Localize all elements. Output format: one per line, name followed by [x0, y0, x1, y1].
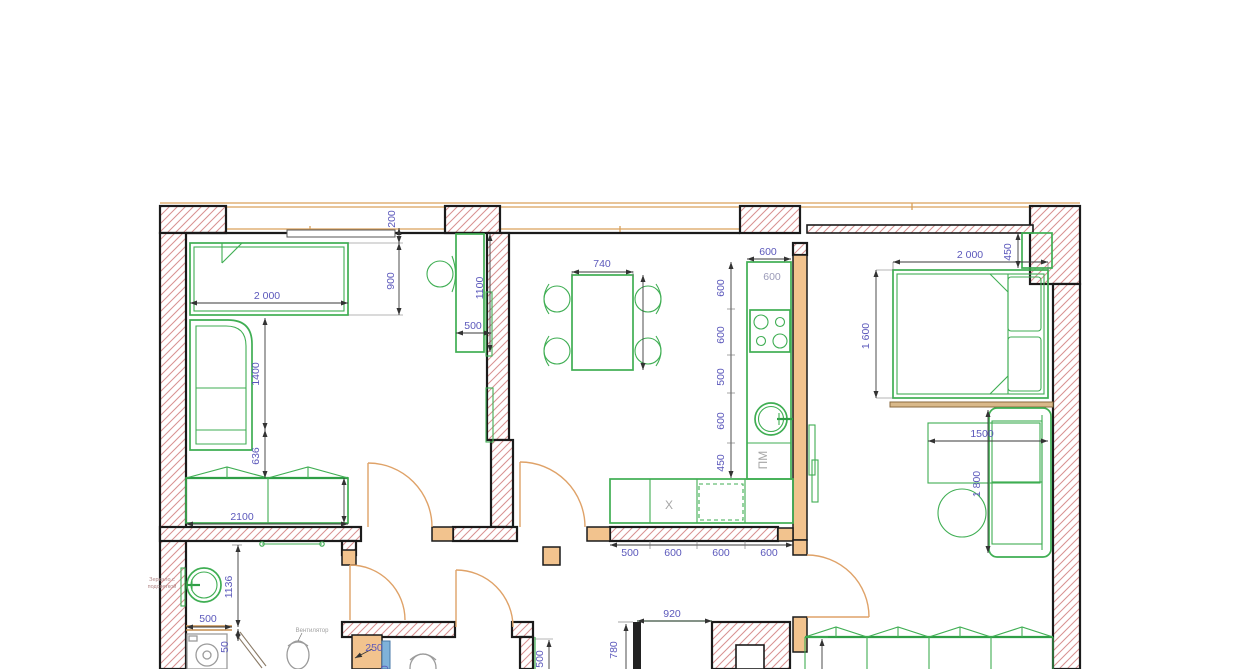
wall-divider2-cap: [793, 243, 807, 255]
kitchen-sink: [755, 403, 793, 435]
dim-counter-row-1: 500: [621, 547, 639, 559]
wall-corridor-left: [160, 527, 361, 541]
dim-bed2-width: 2 000: [957, 249, 983, 261]
dim-desk1-width: 500: [464, 320, 482, 332]
wall-pier-d: [1030, 206, 1080, 284]
dim-hall-opening: 920: [663, 608, 681, 620]
dim-counter-row-4: 600: [760, 547, 778, 559]
wall-corridor-mid: [453, 527, 517, 541]
door-room1: [368, 463, 432, 527]
dim-counter-seg-5: 450: [715, 454, 727, 472]
fan-note: Вентилятор: [296, 628, 330, 634]
dimensions-kitchen: 740 600 600 600 600 500 600 450 500 600 …: [572, 246, 793, 559]
jamb-room1-door: [432, 527, 453, 541]
dim-washer-width: 500: [199, 613, 217, 625]
dim-hall-depth: 780: [608, 641, 620, 659]
dim-counter-depth: 600: [759, 246, 777, 258]
wall-divider2-orange: [793, 255, 807, 540]
stove: [750, 310, 790, 352]
dim-wc-side: 600: [379, 665, 391, 669]
dim-desk1-length: 1100: [474, 277, 486, 300]
kitchen-furniture: [544, 262, 793, 523]
bed-single: [190, 243, 348, 315]
sofa-room1: [190, 320, 252, 450]
wardrobe-room1: [186, 467, 348, 523]
vent-box-label: X: [665, 498, 673, 512]
dimensions-hall: 920 780 500: [534, 608, 712, 669]
wall-pier-a: [160, 206, 226, 233]
dim-counter-seg-1: 600: [715, 279, 727, 297]
dim-nightstand: 450: [1002, 243, 1014, 261]
jamb-bath-door: [342, 550, 356, 565]
dimensions-bedroom2: 2 000 450 1 600 1500 1 800: [805, 233, 1048, 669]
appliance-dashed: [699, 484, 743, 520]
dim-wardrobe1-width: 2100: [230, 511, 254, 523]
dim-counter-seg-3: 500: [715, 368, 727, 386]
mirror-note-line2: подсветкой: [148, 583, 177, 590]
wall-pier-b: [445, 206, 500, 233]
dim-bed1-depth: 900: [385, 272, 397, 290]
dim-bed1-width: 2 000: [254, 290, 280, 302]
dim-sofa2-length: 1 800: [971, 471, 983, 497]
wall-bedroom2-top: [807, 225, 1033, 233]
jamb-living-door: [587, 527, 610, 541]
dim-bath-gap: 50: [219, 641, 231, 653]
window-sill-shelf: [287, 230, 395, 237]
kitchen-counter: [610, 262, 793, 523]
room1-furniture: [186, 230, 493, 523]
wall-lobby-corner-v: [520, 637, 533, 669]
bed-double: [893, 270, 1048, 398]
door-living: [520, 462, 585, 527]
wall-kitchen-bottom: [610, 527, 778, 541]
dim-table-width: 740: [593, 258, 611, 270]
wall-partition-corridor: [491, 440, 513, 527]
dim-counter-seg-2: 600: [715, 326, 727, 344]
wall-left: [160, 233, 186, 669]
dim-window-offset: 200: [386, 210, 398, 228]
dim-bath-wall: 1136: [223, 576, 235, 599]
door-bedroom2: [807, 555, 869, 617]
wall-niche: [736, 645, 764, 669]
dim-counter-seg-4: 600: [715, 412, 727, 430]
dim-wc-shaft: 250: [365, 642, 383, 654]
dim-counter-row-3: 600: [712, 547, 730, 559]
wardrobe-bedroom2: [805, 627, 1053, 669]
wall-lobby-corner-h: [512, 622, 533, 637]
dim-bed2-length: 1 600: [860, 323, 872, 349]
dim-sofa-gap: 636: [250, 447, 262, 465]
wall-hall-stub: [633, 622, 641, 669]
door-wc: [456, 570, 513, 627]
sofa-bedroom2: [989, 408, 1051, 557]
dim-sofa-length: 1400: [250, 362, 262, 386]
floor-plan-drawing: 200 900 2 000 1400 636 2100 1100 500 740…: [0, 0, 1241, 669]
mirror-note-line1: Зеркало с: [149, 577, 175, 583]
dishwasher-label: ПМ: [756, 451, 770, 470]
toilet-bathroom: [287, 641, 309, 669]
door-bathroom: [350, 565, 405, 620]
wall-right: [1053, 284, 1080, 669]
wall-pier-c: [740, 206, 800, 233]
floor-plan-canvas: 200 900 2 000 1400 636 2100 1100 500 740…: [0, 0, 1241, 669]
toilet-wc: [410, 654, 436, 669]
wc-water-heater: [382, 641, 390, 669]
jamb-kitchen-wall: [778, 528, 793, 541]
jamb-bedroom2-top: [793, 540, 807, 555]
dim-counter-row-2: 600: [664, 547, 682, 559]
jamb-lobby: [543, 547, 560, 565]
bathroom-door-leaf: [236, 632, 266, 668]
dim-desk2-width: 1500: [970, 428, 994, 440]
bed-bench: [890, 402, 1053, 407]
dim-counter-depth-2: 600: [763, 271, 781, 283]
dim-hall-cabinet: 500: [534, 650, 546, 668]
